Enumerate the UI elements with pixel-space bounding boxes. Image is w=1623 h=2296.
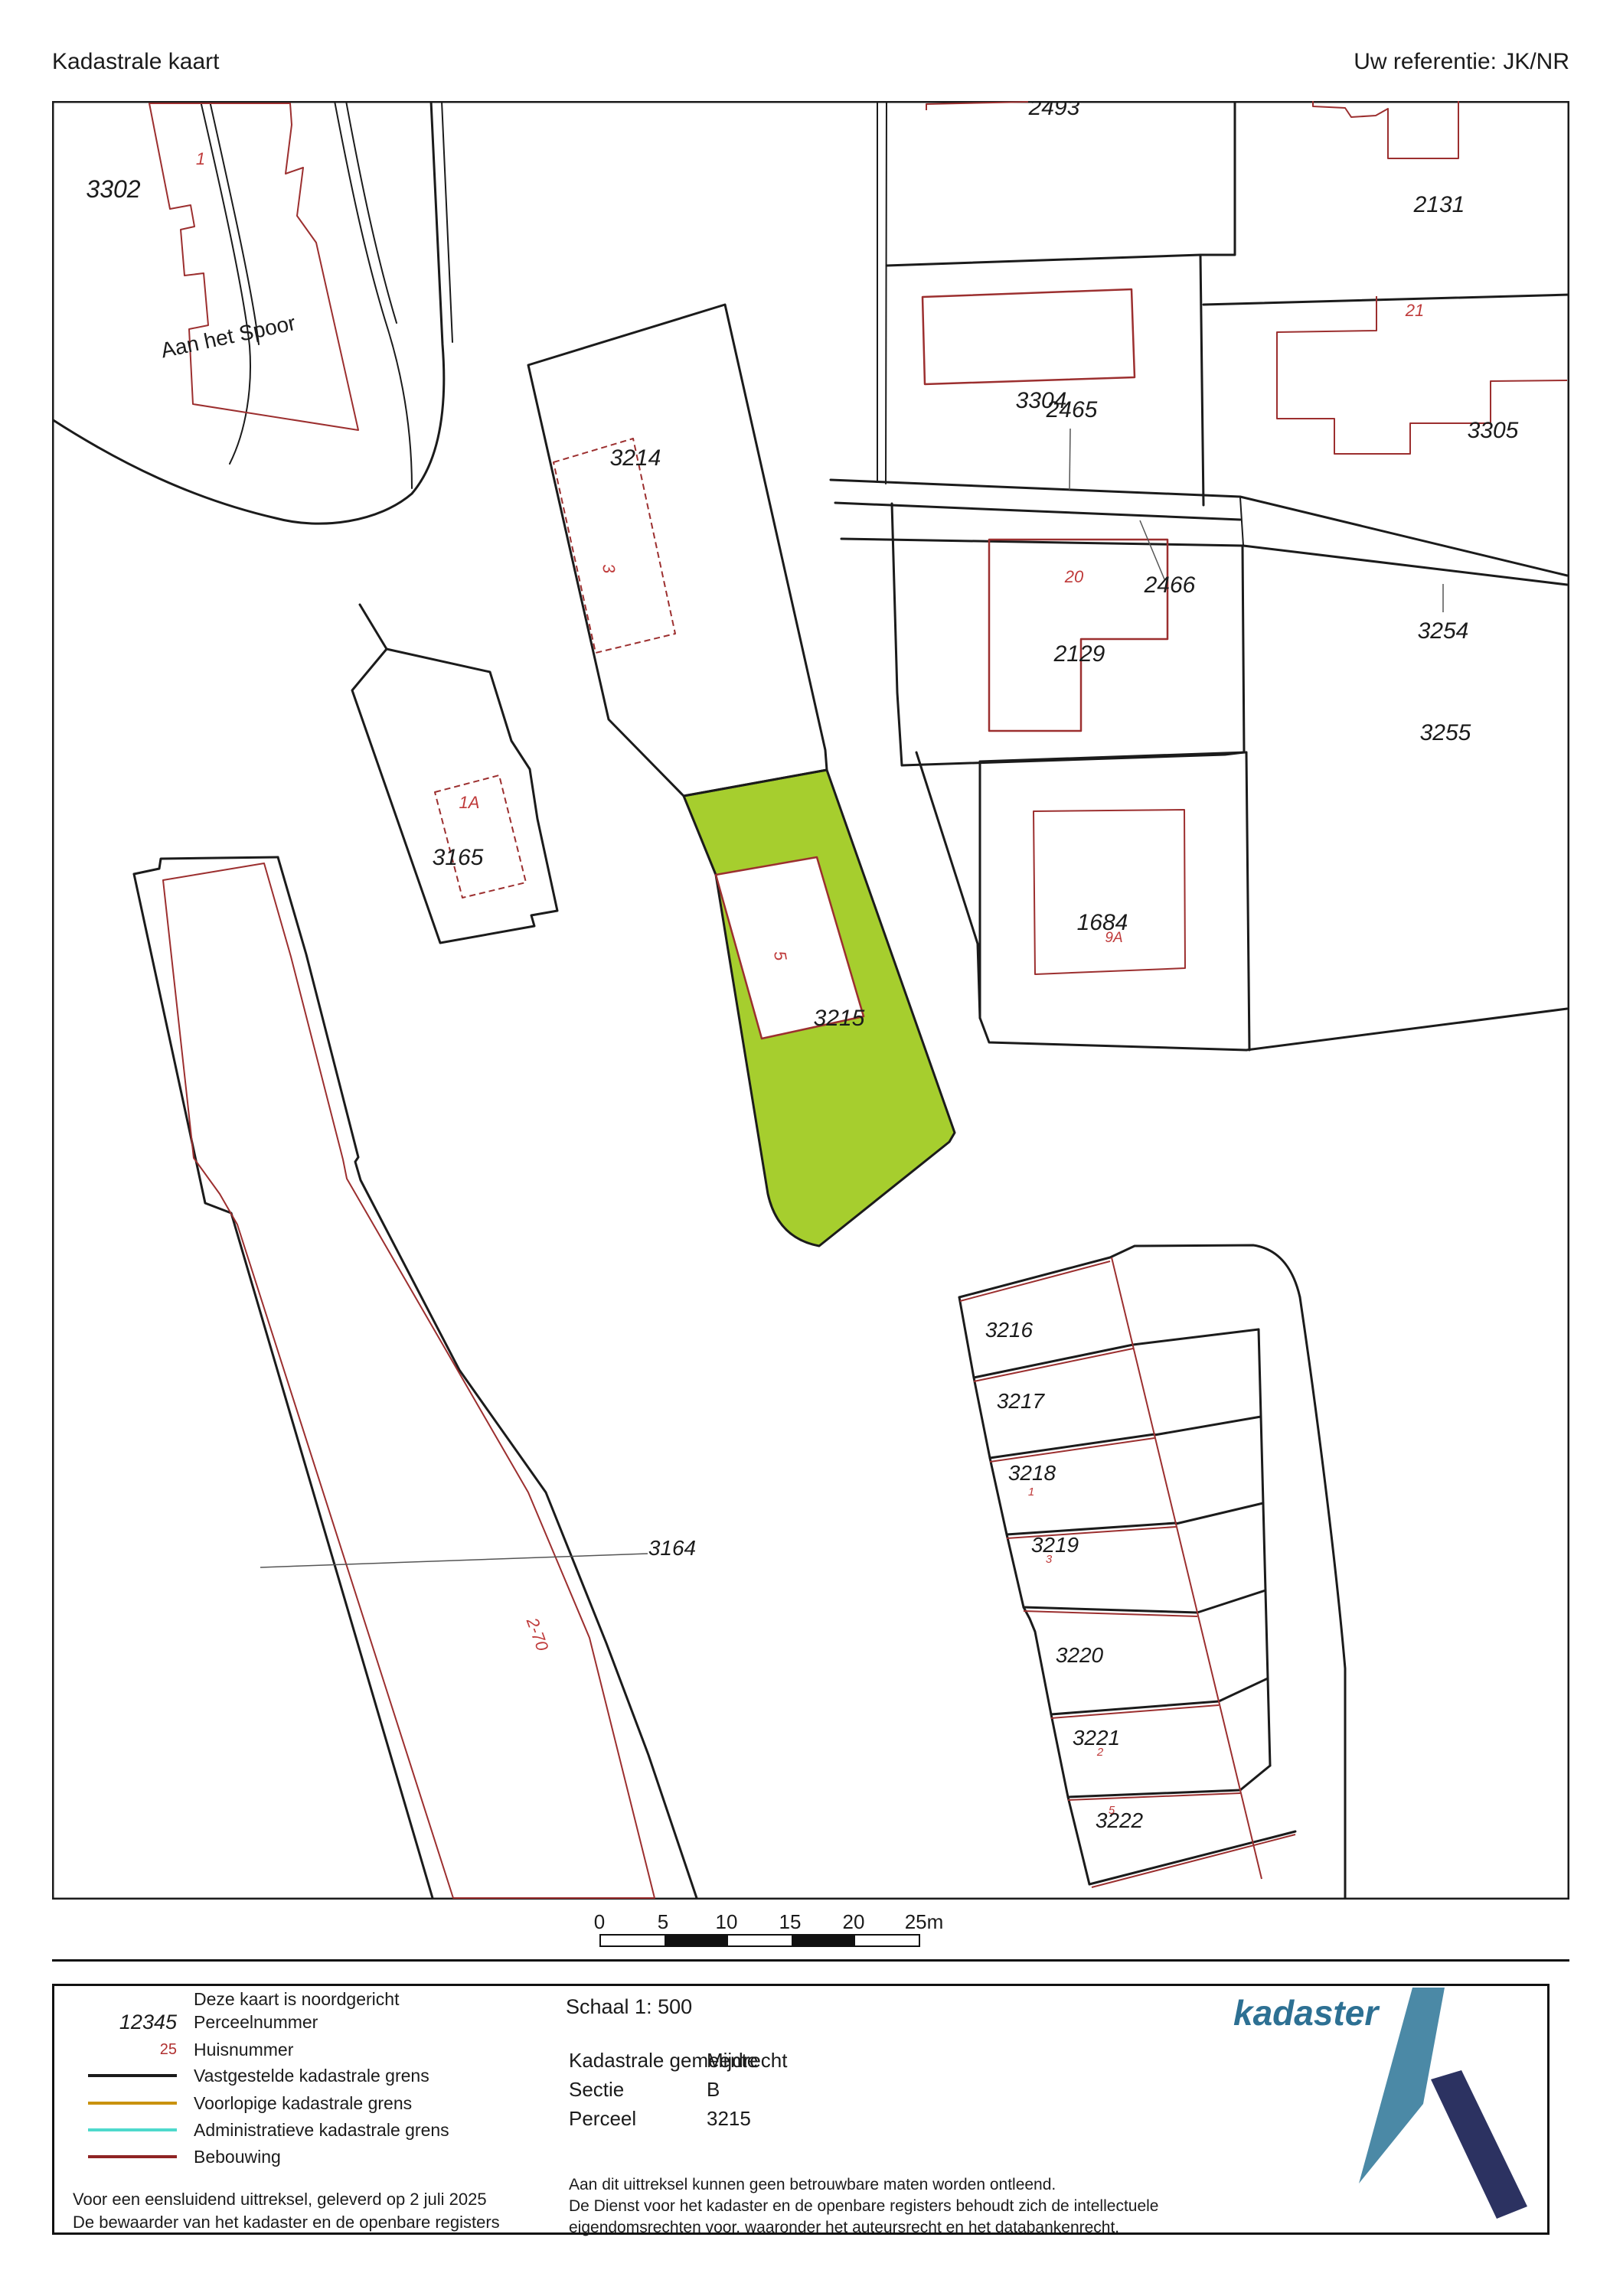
house-number-1: 1 — [196, 149, 205, 168]
house-number-2: 2 — [1096, 1746, 1104, 1759]
page: { "header": { "title": "Kadastrale kaart… — [0, 0, 1623, 2296]
scalebar-segment — [855, 1936, 919, 1945]
parcel-label-3216: 3216 — [985, 1318, 1034, 1342]
sectie-value: B — [707, 2078, 720, 2102]
house-number-21: 21 — [1405, 301, 1424, 320]
scalebar-bar — [599, 1934, 920, 1947]
legend-line-black — [88, 2074, 177, 2077]
delivery-note: Voor een eensluidend uittreksel, gelever… — [73, 2190, 487, 2210]
parcel-label-3302: 3302 — [86, 175, 140, 203]
parcel-label-3220: 3220 — [1056, 1643, 1104, 1667]
legend-row-north: Deze kaart is noordgericht — [54, 1988, 399, 2011]
disclaimer-line: Aan dit uittreksel kunnen geen betrouwba… — [569, 2176, 1056, 2194]
legend-line-gold — [88, 2102, 177, 2105]
parcel-label-3214: 3214 — [610, 445, 661, 471]
map-svg: 3302249321313304246533053214246632542129… — [52, 101, 1569, 1900]
legend-parcelnumber-sample: 12345 — [119, 2011, 177, 2034]
parcel-label-3217: 3217 — [997, 1389, 1046, 1413]
parcel-label-3219: 3219 — [1031, 1533, 1079, 1557]
legend-label: Vastgestelde kadastrale grens — [194, 2066, 429, 2086]
parcel-label-3255: 3255 — [1420, 720, 1471, 745]
cadastral-map: 3302249321313304246533053214246632542129… — [52, 101, 1569, 1900]
scalebar-tick: 5 — [658, 1910, 668, 1934]
logo-light-blade — [1359, 1988, 1445, 2183]
legend-label: Administratieve kadastrale grens — [194, 2120, 449, 2141]
reference-label: Uw referentie: JK/NR — [1354, 49, 1569, 75]
page-title: Kadastrale kaart — [52, 49, 219, 75]
legend-north-note: Deze kaart is noordgericht — [194, 1989, 399, 2010]
perceel-value: 3215 — [707, 2107, 751, 2131]
house-number-5: 5 — [1109, 1804, 1115, 1817]
parcel-label-2466: 2466 — [1144, 572, 1196, 598]
parcel-label-3164: 3164 — [648, 1536, 696, 1560]
legend-row-administratief: Administratieve kadastrale grens — [54, 2118, 449, 2141]
parcel-label-2465: 2465 — [1046, 397, 1098, 422]
logo-dark-blade — [1431, 2070, 1527, 2219]
house-number-1: 1 — [1028, 1486, 1034, 1499]
house-number-20: 20 — [1064, 567, 1084, 586]
scalebar-tick: 25m — [905, 1910, 944, 1934]
info-box: Deze kaart is noordgericht 12345 Perceel… — [52, 1984, 1550, 2235]
parcel-label-3254: 3254 — [1418, 618, 1469, 644]
legend-row-voorlopig: Voorlopige kadastrale grens — [54, 2092, 412, 2115]
scalebar-tick: 15 — [779, 1910, 802, 1934]
scalebar-tick: 0 — [594, 1910, 605, 1934]
legend-label: Voorlopige kadastrale grens — [194, 2093, 412, 2114]
legend-row-perceelnummer: 12345 Perceelnummer — [54, 2011, 318, 2033]
scale-label: Schaal 1: 500 — [566, 1995, 692, 2019]
perceel-label: Perceel — [569, 2107, 636, 2131]
parcel-label-3215: 3215 — [814, 1006, 865, 1031]
scalebar-tick: 10 — [716, 1910, 738, 1934]
boundary-line — [886, 101, 887, 484]
parcel-label-3305: 3305 — [1468, 418, 1519, 443]
parcel-label-3165: 3165 — [433, 845, 484, 870]
scalebar-segment — [665, 1936, 728, 1945]
legend-row-bebouwing: Bebouwing — [54, 2145, 281, 2168]
legend-row-huisnummer: 25 Huisnummer — [54, 2038, 293, 2061]
house-number-1A: 1A — [459, 793, 480, 812]
parcel-label-2493: 2493 — [1028, 101, 1080, 120]
legend-housenumber-sample: 25 — [160, 2041, 177, 2059]
gemeente-value: Mijdrecht — [707, 2049, 787, 2073]
scalebar-segment — [728, 1936, 792, 1945]
scalebar-tick: 20 — [843, 1910, 865, 1934]
legend-label: Huisnummer — [194, 2040, 293, 2060]
disclaimer-line: De Dienst voor het kadaster en de openba… — [569, 2197, 1158, 2216]
parcel-label-3222: 3222 — [1096, 1808, 1144, 1832]
house-number-9A: 9A — [1105, 930, 1122, 946]
scalebar-segment — [792, 1936, 855, 1945]
parcel-label-2129: 2129 — [1053, 641, 1105, 667]
legend-row-vastgesteld: Vastgestelde kadastrale grens — [54, 2064, 429, 2087]
scalebar-segment — [601, 1936, 665, 1945]
boundary-line — [1243, 546, 1244, 752]
legend-label: Perceelnummer — [194, 2012, 318, 2033]
disclaimer-line: eigendomsrechten voor, waaronder het aut… — [569, 2219, 1119, 2237]
sectie-label: Sectie — [569, 2078, 624, 2102]
legend-line-cyan — [88, 2128, 177, 2131]
legend-line-darkred — [88, 2155, 177, 2158]
parcel-label-3218: 3218 — [1008, 1461, 1056, 1485]
registrar-note: De bewaarder van het kadaster en de open… — [73, 2213, 500, 2232]
leader-line — [1069, 429, 1070, 490]
house-number-3: 3 — [1046, 1553, 1053, 1566]
kadaster-logo-mark — [1348, 1986, 1593, 2225]
parcel-label-2131: 2131 — [1413, 192, 1465, 217]
legend-label: Bebouwing — [194, 2147, 281, 2167]
separator-rule — [52, 1959, 1569, 1962]
